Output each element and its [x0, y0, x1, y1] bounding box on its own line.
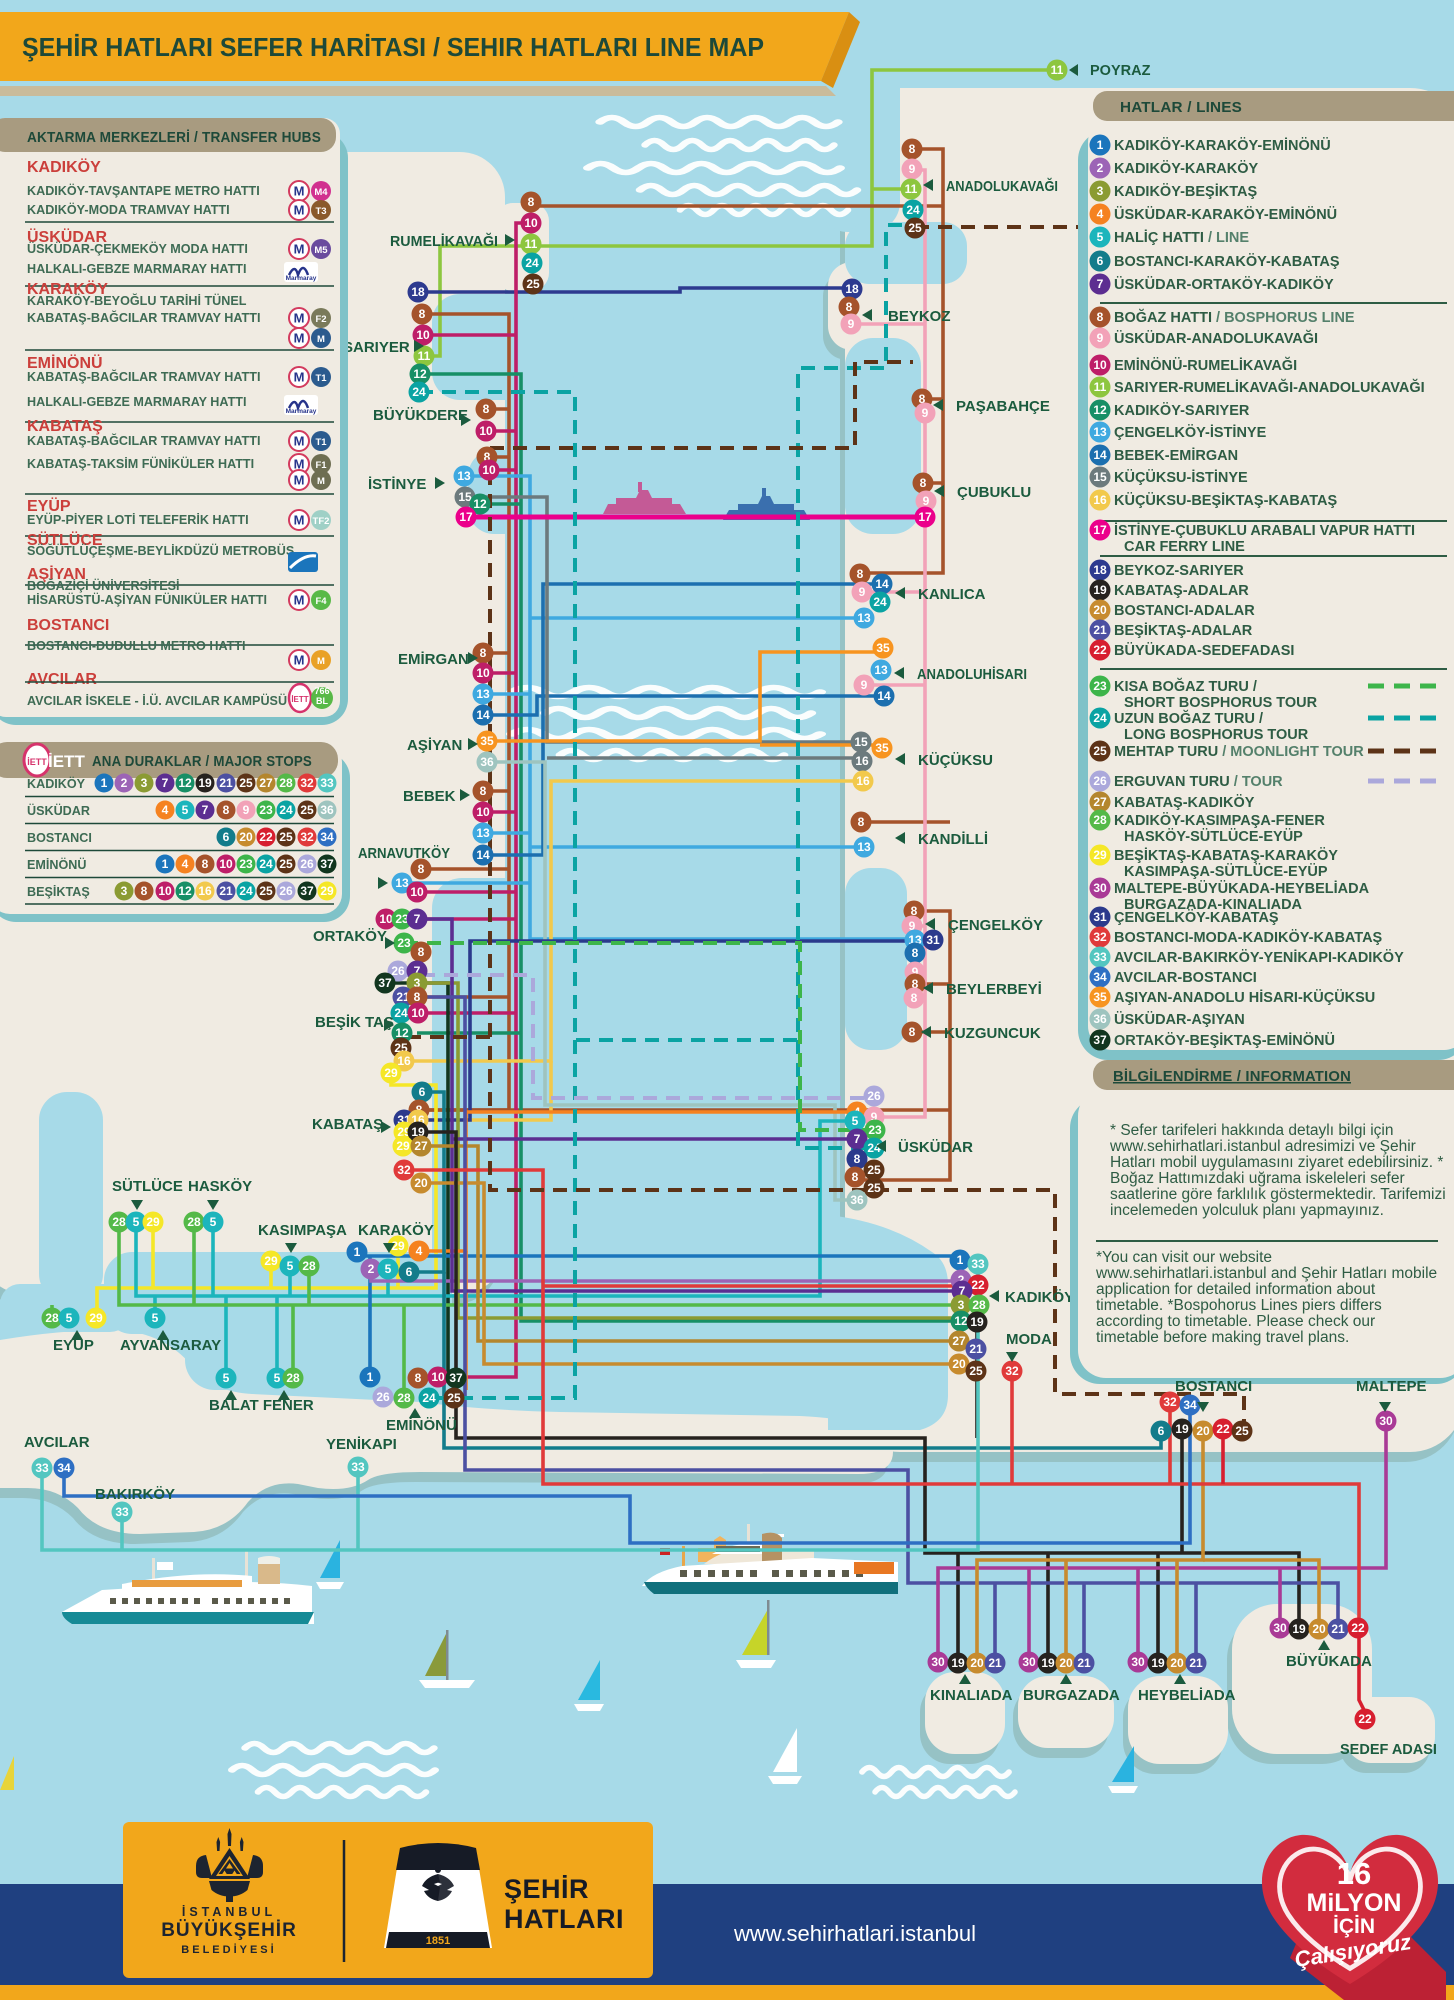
svg-text:1851: 1851 — [426, 1935, 450, 1947]
svg-text:8: 8 — [480, 646, 487, 660]
svg-text:ANADOLUKAVAĞI: ANADOLUKAVAĞI — [946, 177, 1058, 195]
svg-text:9: 9 — [922, 406, 929, 420]
svg-text:ÇUBUKLU: ÇUBUKLU — [957, 484, 1031, 501]
svg-text:10: 10 — [416, 328, 430, 342]
svg-text:ŞEHİR: ŞEHİR — [504, 1874, 589, 1904]
svg-text:20: 20 — [1170, 1656, 1184, 1670]
svg-text:12: 12 — [178, 884, 192, 898]
svg-text:14: 14 — [875, 577, 889, 591]
svg-text:6: 6 — [223, 830, 230, 844]
svg-text:KABATAŞ-KADIKÖY: KABATAŞ-KADIKÖY — [1114, 794, 1255, 811]
svg-text:1: 1 — [162, 857, 169, 871]
svg-text:4: 4 — [416, 1244, 423, 1258]
svg-text:9: 9 — [848, 317, 855, 331]
svg-text:28: 28 — [187, 1215, 201, 1229]
svg-text:AVCILAR: AVCILAR — [24, 1434, 90, 1451]
svg-text:22: 22 — [1216, 1422, 1230, 1436]
svg-text:M: M — [294, 434, 305, 449]
svg-text:7: 7 — [414, 912, 421, 926]
svg-text:26: 26 — [391, 964, 405, 978]
svg-text:EMİNÖNÜ: EMİNÖNÜ — [27, 857, 86, 872]
svg-text:15: 15 — [854, 735, 868, 749]
svg-text:AKTARMA MERKEZLERİ / TRANSFER: AKTARMA MERKEZLERİ / TRANSFER HUBS — [27, 129, 321, 146]
svg-text:BÜYÜKŞEHİR: BÜYÜKŞEHİR — [161, 1920, 297, 1941]
svg-text:KANDİLLİ: KANDİLLİ — [918, 831, 988, 848]
svg-text:F4: F4 — [315, 596, 327, 607]
svg-text:ÜSKÜDAR: ÜSKÜDAR — [898, 1139, 973, 1156]
svg-text:28: 28 — [397, 1391, 411, 1405]
svg-text:KADIKÖY-KARAKÖY: KADIKÖY-KARAKÖY — [1114, 160, 1259, 177]
svg-text:BURGAZADA: BURGAZADA — [1023, 1687, 1120, 1704]
svg-text:16: 16 — [1093, 493, 1107, 507]
svg-text:32: 32 — [300, 776, 314, 790]
svg-text:29: 29 — [396, 1139, 410, 1153]
svg-text:37: 37 — [449, 1371, 463, 1385]
svg-text:35: 35 — [875, 741, 889, 755]
svg-text:30: 30 — [1273, 1621, 1287, 1635]
svg-text:KASIMPAŞA-SÜTLÜCE-EYÜP: KASIMPAŞA-SÜTLÜCE-EYÜP — [1124, 863, 1328, 880]
svg-text:KASIMPAŞA: KASIMPAŞA — [258, 1222, 347, 1239]
svg-text:21: 21 — [969, 1342, 983, 1356]
svg-text:BÜYÜKADA-SEDEFADASI: BÜYÜKADA-SEDEFADASI — [1114, 642, 1294, 659]
svg-text:BEBEK-EMİRGAN: BEBEK-EMİRGAN — [1114, 447, 1238, 464]
svg-text:31: 31 — [1093, 910, 1107, 924]
svg-text:30: 30 — [1131, 1655, 1145, 1669]
svg-text:16: 16 — [198, 884, 212, 898]
svg-text:6: 6 — [1158, 1424, 1165, 1438]
svg-text:13: 13 — [476, 826, 490, 840]
svg-text:29: 29 — [89, 1311, 103, 1325]
svg-text:20: 20 — [952, 1357, 966, 1371]
svg-text:28: 28 — [279, 776, 293, 790]
svg-text:28: 28 — [112, 1215, 126, 1229]
svg-text:5: 5 — [852, 1114, 859, 1128]
svg-text:11: 11 — [905, 182, 918, 196]
svg-text:5: 5 — [223, 1371, 230, 1385]
svg-text:M: M — [294, 653, 305, 668]
svg-text:timetable. *Bospohorus Lines p: timetable. *Bospohorus Lines piers diffe… — [1096, 1297, 1382, 1314]
svg-text:SÖĞÜTLÜÇEŞME-BEYLİKDÜZÜ METROB: SÖĞÜTLÜÇEŞME-BEYLİKDÜZÜ METROBÜS — [27, 543, 294, 558]
svg-text:M: M — [294, 473, 305, 488]
svg-text:KABATAŞ-BAĞCILAR TRAMVAY HATTI: KABATAŞ-BAĞCILAR TRAMVAY HATTI — [27, 433, 260, 448]
svg-text:27: 27 — [952, 1334, 966, 1348]
svg-text:20: 20 — [970, 1656, 984, 1670]
svg-text:8: 8 — [854, 1152, 861, 1166]
svg-text:AVCILAR-BOSTANCI: AVCILAR-BOSTANCI — [1114, 970, 1257, 986]
svg-text:10: 10 — [524, 216, 538, 230]
svg-text:32: 32 — [300, 830, 314, 844]
svg-text:HİSARÜSTÜ-AŞİYAN FÜNIKÜLER HAT: HİSARÜSTÜ-AŞİYAN FÜNIKÜLER HATTI — [27, 592, 267, 607]
svg-text:9: 9 — [1097, 331, 1104, 345]
svg-text:KINALIADA: KINALIADA — [930, 1687, 1013, 1704]
svg-text:33: 33 — [971, 1257, 985, 1271]
svg-text:application for detailed infor: application for detailed information abo… — [1096, 1281, 1376, 1298]
svg-text:22: 22 — [971, 1278, 985, 1292]
svg-text:ANA DURAKLAR / MAJOR STOPS: ANA DURAKLAR / MAJOR STOPS — [92, 753, 312, 770]
svg-text:KISA BOĞAZ TURU /: KISA BOĞAZ TURU / — [1114, 677, 1257, 695]
svg-text:KABATAŞ: KABATAŞ — [27, 418, 103, 435]
svg-text:8: 8 — [415, 1371, 422, 1385]
svg-text:BEŞİKTAŞ-ADALAR: BEŞİKTAŞ-ADALAR — [1114, 622, 1253, 639]
svg-text:KÜÇÜKSU-İSTİNYE: KÜÇÜKSU-İSTİNYE — [1114, 469, 1248, 486]
svg-text:8: 8 — [852, 1170, 859, 1184]
svg-text:10: 10 — [219, 857, 233, 871]
svg-text:4: 4 — [1097, 207, 1104, 221]
svg-text:34: 34 — [1093, 970, 1107, 984]
svg-text:1: 1 — [101, 776, 108, 790]
svg-text:M: M — [317, 476, 325, 487]
svg-text:AŞIYAN-ANADOLU HİSARI-KÜÇÜKSU: AŞIYAN-ANADOLU HİSARI-KÜÇÜKSU — [1114, 989, 1375, 1006]
svg-text:34: 34 — [1183, 1398, 1197, 1412]
svg-text:PAŞABAHÇE: PAŞABAHÇE — [956, 398, 1050, 415]
svg-text:26: 26 — [376, 1390, 390, 1404]
svg-text:13: 13 — [857, 611, 871, 625]
svg-text:KADIKÖY: KADIKÖY — [1005, 1289, 1074, 1306]
svg-text:5: 5 — [274, 1371, 281, 1385]
svg-text:17: 17 — [1093, 523, 1107, 537]
svg-text:AVCILAR İSKELE - İ.Ü. AVCILAR: AVCILAR İSKELE - İ.Ü. AVCILAR KAMPÜSÜ — [27, 693, 287, 708]
svg-text:SÜTLÜCE: SÜTLÜCE — [112, 1178, 183, 1195]
svg-text:26: 26 — [300, 857, 314, 871]
svg-text:22: 22 — [1358, 1712, 1372, 1726]
svg-text:29: 29 — [1093, 848, 1107, 862]
svg-text:4: 4 — [162, 803, 169, 817]
svg-text:30: 30 — [1093, 881, 1107, 895]
svg-text:BOSTANCI: BOSTANCI — [1175, 1378, 1252, 1395]
svg-text:M: M — [317, 334, 325, 345]
svg-text:ÇENGELKÖY: ÇENGELKÖY — [948, 917, 1043, 934]
svg-text:BEŞİKTAŞ: BEŞİKTAŞ — [27, 884, 90, 899]
svg-text:ORTAKÖY: ORTAKÖY — [313, 928, 387, 945]
svg-text:22: 22 — [259, 830, 273, 844]
svg-text:6: 6 — [1097, 254, 1104, 268]
svg-text:SARIYER: SARIYER — [343, 339, 410, 356]
svg-text:SEDEF ADASI: SEDEF ADASI — [1340, 1742, 1437, 1758]
svg-text:21: 21 — [1093, 623, 1107, 637]
svg-text:20: 20 — [414, 1176, 428, 1190]
svg-text:14: 14 — [1093, 448, 1107, 462]
svg-text:29: 29 — [320, 884, 334, 898]
svg-text:BOSTANCI-DUDULLU METRO HATTI: BOSTANCI-DUDULLU METRO HATTI — [27, 639, 246, 653]
svg-text:KADIKÖY-TAVŞANTAPE METRO HATTI: KADIKÖY-TAVŞANTAPE METRO HATTI — [27, 183, 260, 198]
svg-text:6: 6 — [419, 1085, 426, 1099]
svg-text:BÜYÜKDERE: BÜYÜKDERE — [373, 407, 468, 424]
svg-text:M: M — [294, 331, 305, 346]
svg-text:28: 28 — [302, 1259, 316, 1273]
svg-text:5: 5 — [66, 1311, 73, 1325]
svg-text:LONG BOSPHORUS TOUR: LONG BOSPHORUS TOUR — [1124, 727, 1309, 743]
svg-text:27: 27 — [1093, 795, 1107, 809]
svg-text:26: 26 — [279, 884, 293, 898]
svg-text:8: 8 — [857, 567, 864, 581]
svg-text:19: 19 — [951, 1656, 965, 1670]
svg-text:21: 21 — [219, 884, 233, 898]
svg-text:28: 28 — [972, 1298, 986, 1312]
svg-text:23: 23 — [259, 803, 273, 817]
svg-text:2: 2 — [121, 776, 128, 790]
svg-text:HALKALI-GEBZE MARMARAY HATTI: HALKALI-GEBZE MARMARAY HATTI — [27, 262, 246, 276]
svg-text:*You can visit our website: *You can visit our website — [1096, 1249, 1272, 1266]
svg-text:6: 6 — [406, 1265, 413, 1279]
svg-text:8: 8 — [846, 300, 853, 314]
svg-text:BEŞİKTAŞ-KABATAŞ-KARAKÖY: BEŞİKTAŞ-KABATAŞ-KARAKÖY — [1114, 847, 1338, 864]
svg-text:BOSTANCI: BOSTANCI — [27, 831, 92, 845]
svg-text:23: 23 — [239, 857, 253, 871]
svg-text:MiLYON: MiLYON — [1307, 1889, 1402, 1917]
svg-text:37: 37 — [320, 857, 334, 871]
svg-text:HEYBELİADA: HEYBELİADA — [1138, 1687, 1236, 1704]
svg-text:KADIKÖY-KASIMPAŞA-FENER: KADIKÖY-KASIMPAŞA-FENER — [1114, 812, 1325, 829]
svg-text:17: 17 — [918, 510, 932, 524]
svg-text:8: 8 — [202, 857, 209, 871]
svg-text:8: 8 — [1097, 310, 1104, 324]
svg-text:5: 5 — [210, 1215, 217, 1229]
svg-text:M: M — [294, 311, 305, 326]
svg-text:Boğaz Hattımızdaki uğrama iske: Boğaz Hattımızdaki uğrama iskeleleri sef… — [1110, 1170, 1405, 1187]
svg-text:incelemeden yolculuk planı yap: incelemeden yolculuk planı yapmayınız. — [1110, 1202, 1384, 1219]
svg-text:EMİRGAN: EMİRGAN — [398, 651, 469, 668]
svg-text:10: 10 — [479, 424, 493, 438]
svg-text:13: 13 — [874, 663, 888, 677]
svg-text:10: 10 — [411, 1006, 425, 1020]
svg-text:23: 23 — [1093, 679, 1107, 693]
svg-text:AVCILAR-BAKIRKÖY-YENİKAPI-KADI: AVCILAR-BAKIRKÖY-YENİKAPI-KADIKÖY — [1114, 949, 1404, 966]
svg-text:36: 36 — [1093, 1012, 1107, 1026]
svg-text:13: 13 — [457, 469, 471, 483]
svg-text:İSTİNYE: İSTİNYE — [368, 476, 426, 493]
svg-text:12: 12 — [413, 367, 427, 381]
svg-text:BAKIRKÖY: BAKIRKÖY — [95, 1486, 175, 1503]
svg-text:www.sehirhatlari.istanbul and: www.sehirhatlari.istanbul and Şehir Hatl… — [1095, 1265, 1437, 1282]
svg-text:35: 35 — [876, 641, 890, 655]
svg-text:7: 7 — [162, 776, 169, 790]
svg-text:İETT: İETT — [291, 695, 308, 704]
svg-text:5: 5 — [152, 1311, 159, 1325]
svg-text:30: 30 — [1379, 1414, 1393, 1428]
svg-text:36: 36 — [320, 803, 334, 817]
svg-text:8: 8 — [419, 307, 426, 321]
svg-text:BÜYÜKADA: BÜYÜKADA — [1286, 1653, 1372, 1670]
svg-text:24: 24 — [873, 595, 887, 609]
svg-text:3: 3 — [121, 884, 128, 898]
svg-text:M: M — [294, 370, 305, 385]
svg-text:UZUN BOĞAZ TURU /: UZUN BOĞAZ TURU / — [1114, 709, 1263, 727]
svg-text:ŞEHİR HATLARI SEFER HARİTASI /: ŞEHİR HATLARI SEFER HARİTASI / SEHIR HAT… — [22, 32, 764, 62]
svg-text:11: 11 — [418, 349, 431, 363]
svg-text:17: 17 — [459, 510, 473, 524]
svg-text:25: 25 — [447, 1391, 461, 1405]
svg-text:18: 18 — [1093, 563, 1107, 577]
svg-text:13: 13 — [1093, 425, 1107, 439]
svg-text:12: 12 — [178, 776, 192, 790]
svg-text:25: 25 — [259, 884, 273, 898]
svg-text:M4: M4 — [314, 187, 328, 198]
svg-text:36: 36 — [850, 1193, 864, 1207]
svg-text:10: 10 — [476, 805, 490, 819]
svg-text:7: 7 — [1097, 277, 1104, 291]
svg-text:2: 2 — [368, 1262, 375, 1276]
svg-text:12: 12 — [473, 497, 487, 511]
svg-text:23: 23 — [868, 1123, 882, 1137]
svg-text:16: 16 — [397, 1054, 411, 1068]
svg-text:28: 28 — [1093, 813, 1107, 827]
svg-text:34: 34 — [320, 830, 334, 844]
svg-text:18: 18 — [845, 282, 859, 296]
svg-text:24: 24 — [525, 256, 539, 270]
svg-text:10: 10 — [410, 885, 424, 899]
svg-text:12: 12 — [954, 1314, 968, 1328]
svg-text:24: 24 — [279, 803, 293, 817]
svg-text:20: 20 — [1093, 603, 1107, 617]
svg-text:HALİÇ HATTI / LINE: HALİÇ HATTI / LINE — [1114, 229, 1249, 246]
svg-text:7: 7 — [202, 803, 209, 817]
svg-text:29: 29 — [384, 1066, 398, 1080]
svg-text:30: 30 — [931, 1655, 945, 1669]
svg-text:24: 24 — [1093, 711, 1107, 725]
svg-text:İSTANBUL: İSTANBUL — [182, 1904, 276, 1919]
svg-text:M: M — [294, 184, 305, 199]
svg-text:KADIKÖY-SARIYER: KADIKÖY-SARIYER — [1114, 402, 1250, 419]
svg-text:14: 14 — [476, 848, 490, 862]
svg-text:ÜSKÜDAR-AŞIYAN: ÜSKÜDAR-AŞIYAN — [1114, 1011, 1245, 1028]
svg-text:İSTİNYE-ÇUBUKLU ARABALI VAPUR: İSTİNYE-ÇUBUKLU ARABALI VAPUR HATTI — [1114, 522, 1415, 539]
svg-text:32: 32 — [1093, 930, 1107, 944]
svg-text:23: 23 — [397, 936, 411, 950]
svg-text:KABATAŞ-TAKSİM FÜNİKÜLER HATTI: KABATAŞ-TAKSİM FÜNİKÜLER HATTI — [27, 456, 254, 471]
svg-text:5: 5 — [287, 1259, 294, 1273]
svg-text:29: 29 — [264, 1254, 278, 1268]
svg-text:8: 8 — [480, 784, 487, 798]
svg-text:24: 24 — [239, 884, 253, 898]
svg-text:TF2: TF2 — [313, 516, 330, 527]
svg-text:EYÜP-PİYER LOTİ TELEFERİK HATT: EYÜP-PİYER LOTİ TELEFERİK HATTI — [27, 512, 249, 527]
svg-text:AYVANSARAY: AYVANSARAY — [120, 1337, 221, 1354]
svg-text:Marmaray: Marmaray — [286, 275, 317, 282]
svg-text:8: 8 — [912, 946, 919, 960]
svg-text:KABATAŞ-BAĞCILAR TRAMVAY HATTI: KABATAŞ-BAĞCILAR TRAMVAY HATTI — [27, 310, 260, 325]
svg-text:BEBEK: BEBEK — [403, 788, 456, 805]
svg-text:37: 37 — [300, 884, 314, 898]
svg-text:HALKALI-GEBZE MARMARAY HATTI: HALKALI-GEBZE MARMARAY HATTI — [27, 395, 246, 409]
svg-text:21: 21 — [219, 776, 233, 790]
svg-text:BEYKOZ-SARIYER: BEYKOZ-SARIYER — [1114, 563, 1244, 579]
svg-text:19: 19 — [1175, 1422, 1189, 1436]
svg-text:11: 11 — [1051, 63, 1064, 77]
svg-text:* Sefer tarifeleri hakkında de: * Sefer tarifeleri hakkında detaylı bilg… — [1110, 1122, 1393, 1139]
svg-text:28: 28 — [45, 1311, 59, 1325]
svg-text:10: 10 — [476, 666, 490, 680]
svg-text:9: 9 — [923, 494, 930, 508]
svg-text:25: 25 — [867, 1163, 881, 1177]
svg-text:İETT: İETT — [48, 752, 85, 771]
svg-text:AŞİYAN: AŞİYAN — [407, 737, 462, 754]
svg-text:10: 10 — [379, 912, 393, 926]
svg-text:22: 22 — [1351, 1621, 1365, 1635]
svg-text:MODA: MODA — [1006, 1331, 1052, 1348]
svg-text:BEYLERBEYİ: BEYLERBEYİ — [946, 981, 1042, 998]
svg-text:KADIKÖY: KADIKÖY — [27, 157, 101, 176]
svg-text:10: 10 — [431, 1370, 445, 1384]
svg-text:19: 19 — [198, 776, 212, 790]
svg-text:3: 3 — [1097, 184, 1104, 198]
svg-text:1: 1 — [957, 1253, 964, 1267]
svg-text:ÜSKÜDAR-ÇEKMEKÖY MODA HATTI: ÜSKÜDAR-ÇEKMEKÖY MODA HATTI — [27, 241, 248, 256]
svg-text:8: 8 — [414, 990, 421, 1004]
svg-text:8: 8 — [418, 945, 425, 959]
svg-text:ÜSKÜDAR: ÜSKÜDAR — [27, 803, 90, 818]
svg-text:AVCILAR: AVCILAR — [27, 671, 97, 688]
svg-text:32: 32 — [1163, 1395, 1177, 1409]
svg-text:25: 25 — [969, 1364, 983, 1378]
svg-text:20: 20 — [239, 830, 253, 844]
svg-text:www.sehirhatlari.istanbul adre: www.sehirhatlari.istanbul adresimizi ve … — [1109, 1138, 1416, 1155]
svg-text:M: M — [294, 203, 305, 218]
svg-text:saatlerine göre farklılık göst: saatlerine göre farklılık göstermektedir… — [1110, 1186, 1446, 1203]
svg-text:25: 25 — [1235, 1424, 1249, 1438]
svg-text:YENİKAPI: YENİKAPI — [326, 1436, 397, 1453]
svg-text:HASKÖY: HASKÖY — [188, 1178, 252, 1195]
svg-text:25: 25 — [300, 803, 314, 817]
svg-text:8: 8 — [909, 1025, 916, 1039]
svg-text:M: M — [294, 513, 305, 528]
svg-text:M5: M5 — [314, 245, 328, 256]
svg-text:ÜSKÜDAR-ANADOLUKAVAĞI: ÜSKÜDAR-ANADOLUKAVAĞI — [1114, 329, 1318, 347]
svg-text:22: 22 — [1093, 643, 1107, 657]
svg-text:BOSTANCI: BOSTANCI — [27, 617, 109, 634]
svg-text:4: 4 — [182, 857, 189, 871]
svg-text:MEHTAP TURU / MOONLIGHT TOUR: MEHTAP TURU / MOONLIGHT TOUR — [1114, 744, 1364, 760]
svg-text:according to timetable. Please: according to timetable. Please check our — [1096, 1313, 1375, 1330]
svg-text:24: 24 — [412, 385, 426, 399]
svg-text:13: 13 — [476, 687, 490, 701]
svg-text:25: 25 — [867, 1181, 881, 1195]
svg-text:20: 20 — [1059, 1656, 1073, 1670]
svg-text:13: 13 — [395, 876, 409, 890]
svg-text:8: 8 — [920, 476, 927, 490]
svg-text:8: 8 — [858, 815, 865, 829]
svg-text:KÜÇÜKSU: KÜÇÜKSU — [918, 752, 993, 769]
svg-text:ANADOLUHİSARI: ANADOLUHİSARI — [917, 666, 1027, 683]
svg-text:27: 27 — [259, 776, 273, 790]
svg-text:19: 19 — [1041, 1656, 1055, 1670]
svg-text:26: 26 — [1093, 774, 1107, 788]
svg-text:M: M — [317, 656, 325, 667]
svg-text:KADIKÖY-KARAKÖY-EMİNÖNÜ: KADIKÖY-KARAKÖY-EMİNÖNÜ — [1114, 137, 1331, 154]
svg-text:20: 20 — [1312, 1622, 1326, 1636]
svg-text:5: 5 — [385, 1262, 392, 1276]
svg-text:29: 29 — [391, 1239, 405, 1253]
svg-text:KARAKÖY-BEYOĞLU TARİHİ TÜNEL: KARAKÖY-BEYOĞLU TARİHİ TÜNEL — [27, 293, 247, 308]
svg-text:POYRAZ: POYRAZ — [1090, 63, 1151, 79]
svg-text:8: 8 — [141, 884, 148, 898]
svg-text:10: 10 — [482, 463, 496, 477]
svg-text:9: 9 — [861, 678, 868, 692]
svg-text:HASKÖY-SÜTLÜCE-EYÜP: HASKÖY-SÜTLÜCE-EYÜP — [1124, 828, 1303, 845]
svg-text:KUZGUNCUK: KUZGUNCUK — [944, 1025, 1041, 1042]
svg-text:RUMELİKAVAĞI: RUMELİKAVAĞI — [390, 232, 498, 250]
svg-text:Hatları mobil uygulamasını ziy: Hatları mobil uygulamasını ziyaret edebi… — [1110, 1154, 1443, 1171]
svg-text:EMİNÖNÜ: EMİNÖNÜ — [386, 1417, 457, 1434]
svg-text:24: 24 — [422, 1391, 436, 1405]
svg-text:26: 26 — [867, 1089, 881, 1103]
svg-text:BİLGİLENDİRME / INFORMATION: BİLGİLENDİRME / INFORMATION — [1113, 1068, 1351, 1085]
svg-text:3: 3 — [141, 776, 148, 790]
svg-text:BOĞAZİÇİ ÜNİVERSİTESİ: BOĞAZİÇİ ÜNİVERSİTESİ — [27, 578, 180, 593]
svg-text:ORTAKÖY-BEŞİKTAŞ-EMİNÖNÜ: ORTAKÖY-BEŞİKTAŞ-EMİNÖNÜ — [1114, 1032, 1335, 1049]
svg-text:ÇENGELKÖY-İSTİNYE: ÇENGELKÖY-İSTİNYE — [1114, 424, 1267, 441]
svg-text:5: 5 — [133, 1215, 140, 1229]
svg-text:BOSTANCI-MODA-KADIKÖY-KABATAŞ: BOSTANCI-MODA-KADIKÖY-KABATAŞ — [1114, 929, 1383, 946]
